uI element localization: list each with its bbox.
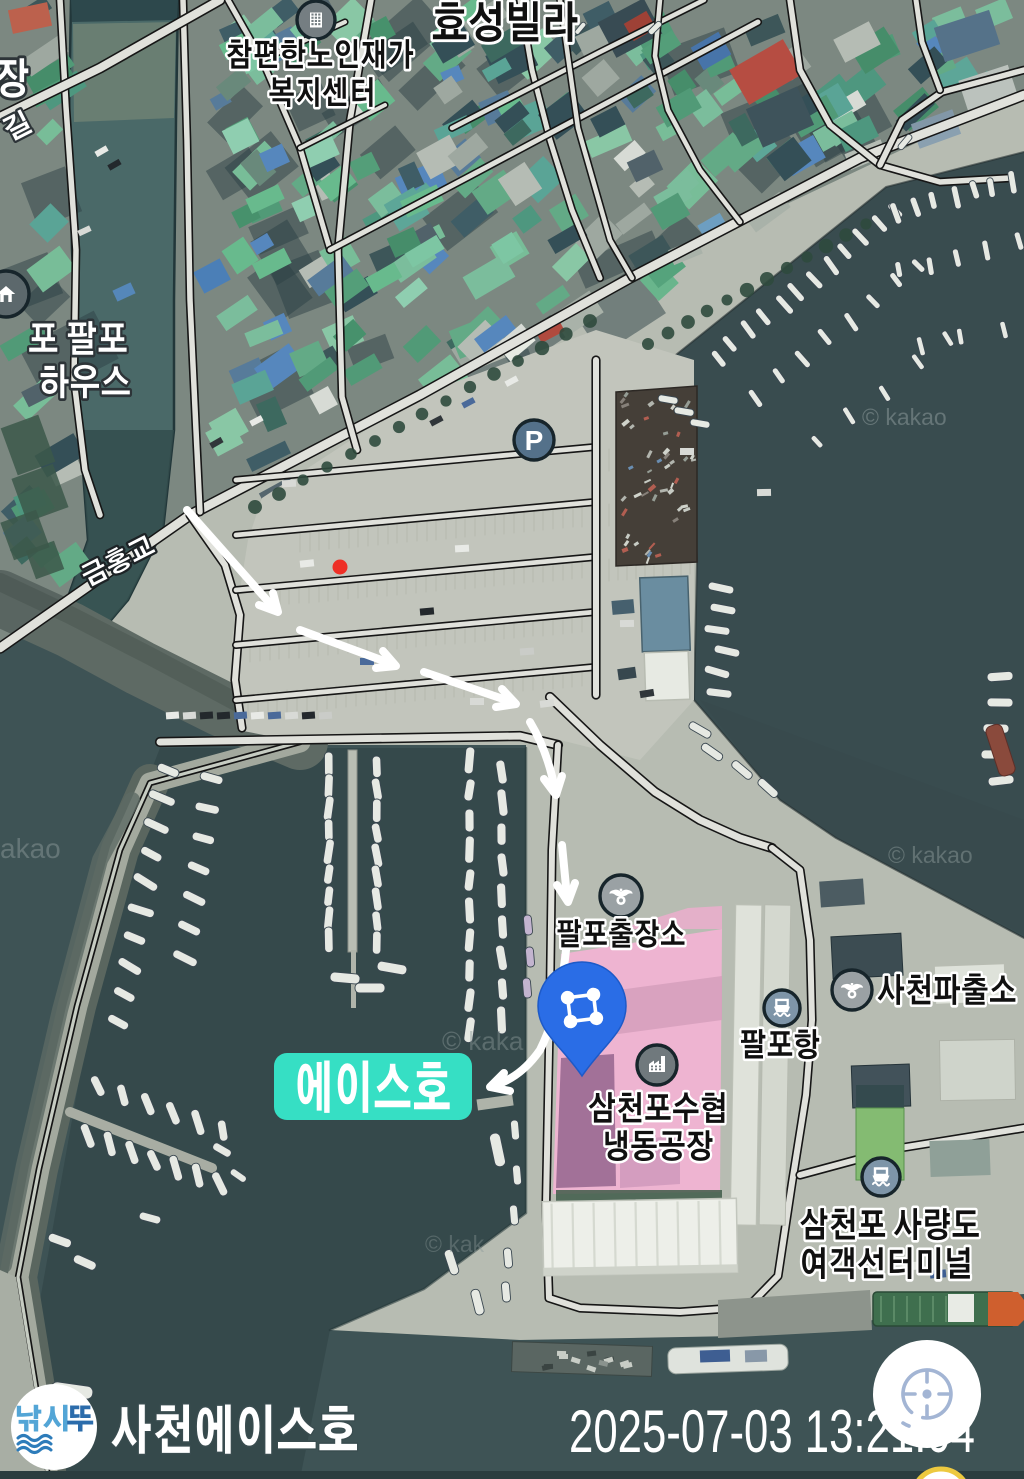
svg-text:© kaka: © kaka: [442, 1026, 524, 1056]
svg-text:kakao: kakao: [0, 833, 61, 864]
svg-text:© kakao: © kakao: [862, 404, 947, 430]
svg-text:© kak: © kak: [425, 1231, 485, 1257]
svg-text:P: P: [525, 425, 544, 456]
svg-text:© kakao: © kakao: [888, 842, 973, 868]
